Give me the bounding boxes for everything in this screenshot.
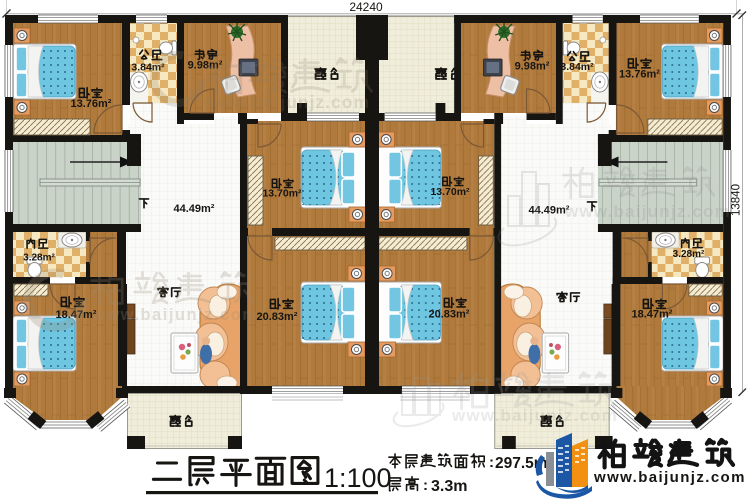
svg-text:24240: 24240 — [349, 0, 383, 14]
svg-text:20.83m²: 20.83m² — [429, 309, 470, 321]
svg-text:9.98m²: 9.98m² — [188, 60, 223, 72]
svg-text:3.28m²: 3.28m² — [23, 253, 55, 264]
svg-text::: : — [423, 477, 428, 494]
svg-text:3.84m²: 3.84m² — [560, 61, 594, 73]
svg-text:44.49m²: 44.49m² — [174, 203, 215, 215]
svg-text:13.70m²: 13.70m² — [430, 186, 470, 198]
svg-text:18.47m²: 18.47m² — [632, 309, 673, 321]
svg-text:3.3m: 3.3m — [431, 478, 467, 495]
svg-text:3.28m²: 3.28m² — [673, 249, 705, 260]
svg-text:13.76m²: 13.76m² — [619, 69, 660, 81]
svg-text:www.baijunjz.com: www.baijunjz.com — [564, 202, 731, 221]
svg-text:www.baijunjz.com: www.baijunjz.com — [91, 306, 258, 324]
svg-text:13840: 13840 — [731, 184, 743, 216]
svg-text:www.baijunjz.com: www.baijunjz.com — [593, 469, 746, 486]
svg-text:9.98m²: 9.98m² — [515, 61, 550, 73]
svg-text:www.baijunjz.com: www.baijunjz.com — [451, 406, 618, 425]
svg-text:13.70m²: 13.70m² — [262, 188, 302, 200]
svg-text:20.83m²: 20.83m² — [257, 311, 298, 323]
svg-text:www.baijunjz.com: www.baijunjz.com — [202, 92, 370, 112]
svg-text:1:100: 1:100 — [324, 463, 392, 493]
svg-text:13.76m²: 13.76m² — [71, 98, 112, 110]
svg-text::: : — [489, 454, 494, 471]
